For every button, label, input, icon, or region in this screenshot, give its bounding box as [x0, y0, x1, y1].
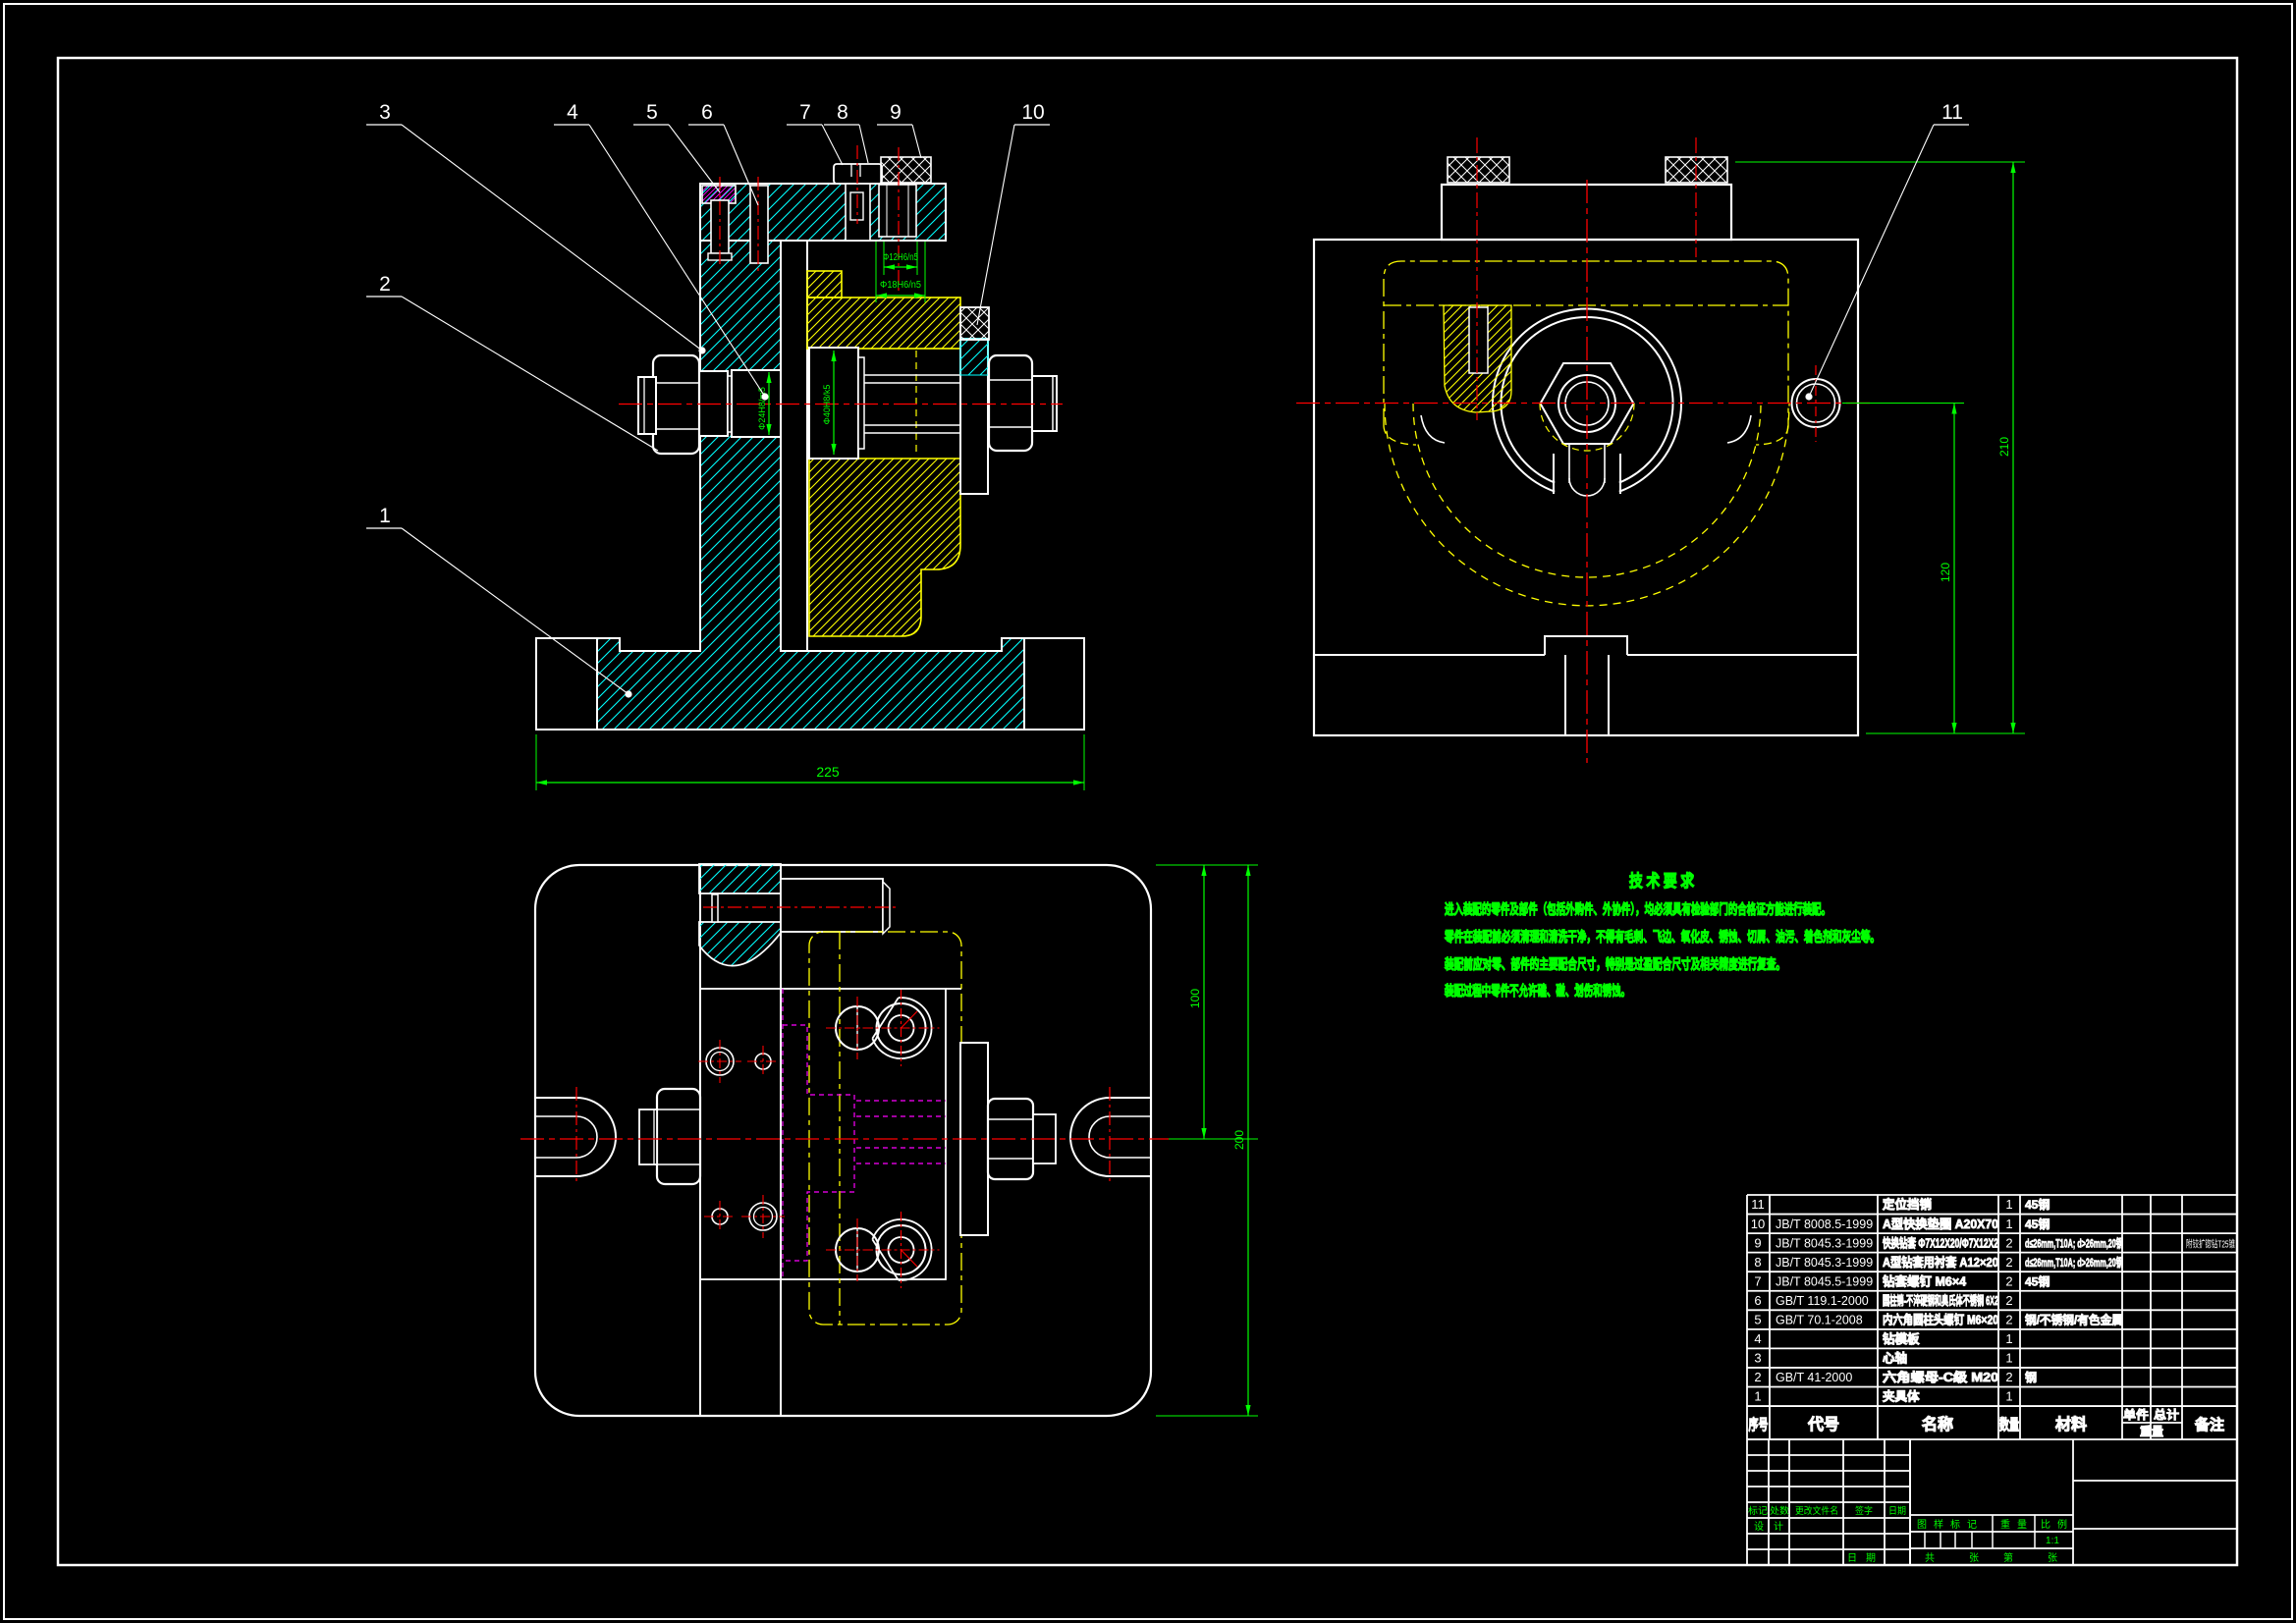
svg-text:名称: 名称: [1922, 1415, 1953, 1434]
svg-text:45钢: 45钢: [2025, 1197, 2050, 1212]
svg-text:10: 10: [1021, 101, 1044, 124]
svg-text:8: 8: [837, 101, 848, 124]
svg-text:Φ40H8/k5: Φ40H8/k5: [822, 385, 832, 425]
svg-text:钢: 钢: [2025, 1370, 2037, 1384]
svg-text:JB/T 8045.3-1999: JB/T 8045.3-1999: [1776, 1236, 1873, 1250]
svg-text:标记: 标记: [1748, 1505, 1769, 1517]
svg-text:代号: 代号: [1807, 1415, 1839, 1434]
svg-text:5: 5: [1754, 1313, 1761, 1327]
svg-text:7: 7: [799, 101, 811, 124]
svg-text:定位挡销: 定位挡销: [1882, 1197, 1933, 1212]
svg-text:计: 计: [1774, 1520, 1783, 1533]
svg-text:2: 2: [2005, 1293, 2012, 1308]
svg-text:钢/不锈钢/有色金属: 钢/不锈钢/有色金属: [2025, 1313, 2123, 1327]
svg-text:附铰扩锪钻T25锥: 附铰扩锪钻T25锥: [2186, 1237, 2235, 1250]
svg-text:六角螺母-C级 M20: 六角螺母-C级 M20: [1883, 1370, 1998, 1384]
svg-text:圆柱销-不淬硬钢和奥氏体不锈钢 6X2: 圆柱销-不淬硬钢和奥氏体不锈钢 6X2: [1883, 1293, 1998, 1308]
svg-text:重: 重: [2000, 1518, 2010, 1531]
svg-text:2: 2: [379, 273, 391, 296]
svg-text:A型快换垫圈 A20X70: A型快换垫圈 A20X70: [1883, 1217, 1998, 1231]
svg-text:5: 5: [646, 101, 658, 124]
svg-text:d≤26mm,T10A; d>26mm,20钢: d≤26mm,T10A; d>26mm,20钢: [2025, 1235, 2123, 1250]
svg-text:200: 200: [1232, 1130, 1246, 1150]
svg-text:零件在装配前必须清理和清洗干净，不得有毛刺、飞边、氧化皮、锈: 零件在装配前必须清理和清洗干净，不得有毛刺、飞边、氧化皮、锈蚀、切屑、油污、着色…: [1444, 929, 1880, 945]
svg-text:例: 例: [2057, 1518, 2067, 1531]
svg-text:签字: 签字: [1855, 1505, 1873, 1517]
svg-text:期: 期: [1866, 1552, 1876, 1564]
svg-text:单件: 单件: [2123, 1407, 2149, 1422]
svg-text:共: 共: [1925, 1552, 1935, 1564]
svg-text:45钢: 45钢: [2025, 1217, 2050, 1231]
svg-text:7: 7: [1754, 1273, 1761, 1288]
svg-text:1: 1: [2005, 1351, 2012, 1366]
svg-text:4: 4: [1754, 1331, 1761, 1346]
svg-text:9: 9: [890, 101, 902, 124]
svg-text:JB/T 8045.3-1999: JB/T 8045.3-1999: [1776, 1256, 1873, 1270]
svg-text:JB/T 8045.5-1999: JB/T 8045.5-1999: [1776, 1274, 1873, 1288]
svg-text:技 术 要 求: 技 术 要 求: [1629, 871, 1694, 891]
svg-text:钻套螺钉 M6×4: 钻套螺钉 M6×4: [1883, 1273, 1966, 1288]
svg-text:1: 1: [1754, 1389, 1761, 1404]
svg-text:Φ18H6/n5: Φ18H6/n5: [880, 280, 921, 291]
svg-text:重量: 重量: [2140, 1424, 2163, 1438]
svg-text:3: 3: [1754, 1351, 1761, 1366]
svg-text:100: 100: [1188, 989, 1202, 1008]
svg-text:装配前应对零、部件的主要配合尺寸，特别是过盈配合尺寸及相关精: 装配前应对零、部件的主要配合尺寸，特别是过盈配合尺寸及相关精度进行复查。: [1444, 956, 1785, 972]
svg-text:心轴: 心轴: [1883, 1351, 1907, 1366]
svg-text:d≤26mm,T10A; d>26mm,20钢: d≤26mm,T10A; d>26mm,20钢: [2025, 1255, 2123, 1270]
svg-text:2: 2: [2005, 1370, 2012, 1384]
svg-text:处数: 处数: [1770, 1505, 1790, 1517]
svg-text:钻模板: 钻模板: [1883, 1331, 1920, 1346]
svg-text:更改文件名: 更改文件名: [1795, 1505, 1838, 1517]
svg-text:标: 标: [1950, 1519, 1960, 1531]
svg-text:A型钻套用衬套 A12×20: A型钻套用衬套 A12×20: [1883, 1255, 1998, 1270]
svg-text:GB/T 70.1-2008: GB/T 70.1-2008: [1776, 1314, 1863, 1327]
svg-text:快换钻套 Φ7X12X20/Φ7X12X2: 快换钻套 Φ7X12X20/Φ7X12X2: [1883, 1235, 1998, 1250]
svg-text:日期: 日期: [1888, 1506, 1906, 1517]
svg-text:张: 张: [1969, 1552, 1979, 1564]
svg-text:序号: 序号: [1749, 1416, 1769, 1434]
svg-text:夹具体: 夹具体: [1883, 1389, 1920, 1404]
svg-text:设: 设: [1754, 1521, 1764, 1533]
svg-text:量: 量: [2017, 1519, 2027, 1531]
svg-text:GB/T 41-2000: GB/T 41-2000: [1776, 1371, 1852, 1384]
svg-text:图: 图: [1917, 1519, 1927, 1531]
svg-text:日: 日: [1847, 1553, 1857, 1564]
svg-text:3: 3: [379, 101, 391, 124]
svg-text:装配过程中零件不允许磕、碰、划伤和锈蚀。: 装配过程中零件不允许磕、碰、划伤和锈蚀。: [1444, 983, 1630, 999]
svg-text:6: 6: [1754, 1293, 1761, 1308]
svg-text:记: 记: [1967, 1519, 1977, 1531]
svg-text:张: 张: [2048, 1552, 2057, 1564]
svg-text:8: 8: [1754, 1255, 1761, 1270]
svg-text:2: 2: [2005, 1273, 2012, 1288]
svg-text:10: 10: [1751, 1217, 1765, 1231]
svg-text:内六角圆柱头螺钉 M6×20: 内六角圆柱头螺钉 M6×20: [1883, 1313, 1998, 1327]
svg-text:2: 2: [1754, 1370, 1761, 1384]
svg-text:1: 1: [2005, 1217, 2012, 1231]
svg-text:1: 1: [2005, 1331, 2012, 1346]
svg-text:4: 4: [567, 101, 578, 124]
svg-text:45钢: 45钢: [2025, 1273, 2050, 1288]
svg-text:GB/T 119.1-2000: GB/T 119.1-2000: [1776, 1294, 1869, 1308]
svg-text:总计: 总计: [2154, 1407, 2179, 1422]
svg-text:Φ12H6/n5: Φ12H6/n5: [883, 252, 918, 263]
svg-text:JB/T 8008.5-1999: JB/T 8008.5-1999: [1776, 1217, 1873, 1231]
svg-text:6: 6: [701, 101, 713, 124]
svg-text:第: 第: [2003, 1551, 2013, 1564]
svg-text:1: 1: [2005, 1389, 2012, 1404]
svg-text:9: 9: [1754, 1235, 1761, 1250]
svg-text:比: 比: [2041, 1519, 2050, 1531]
svg-text:210: 210: [1997, 437, 2011, 457]
svg-text:数量: 数量: [1999, 1416, 2019, 1434]
svg-text:进入装配的零件及部件（包括外购件、外协件），均必须具有检验部: 进入装配的零件及部件（包括外购件、外协件），均必须具有检验部门的合格证方能进行装…: [1445, 901, 1831, 917]
svg-text:1:1: 1:1: [2046, 1536, 2059, 1546]
svg-text:样: 样: [1934, 1518, 1943, 1531]
svg-text:120: 120: [1939, 563, 1952, 582]
svg-text:2: 2: [2005, 1255, 2012, 1270]
svg-text:1: 1: [379, 505, 391, 527]
svg-text:材料: 材料: [2055, 1415, 2087, 1434]
svg-text:11: 11: [1751, 1197, 1765, 1212]
svg-text:11: 11: [1941, 101, 1963, 124]
svg-text:2: 2: [2005, 1313, 2012, 1327]
svg-text:2: 2: [2005, 1235, 2012, 1250]
svg-text:备注: 备注: [2194, 1416, 2224, 1434]
svg-text:1: 1: [2005, 1197, 2012, 1212]
svg-text:225: 225: [816, 764, 840, 780]
